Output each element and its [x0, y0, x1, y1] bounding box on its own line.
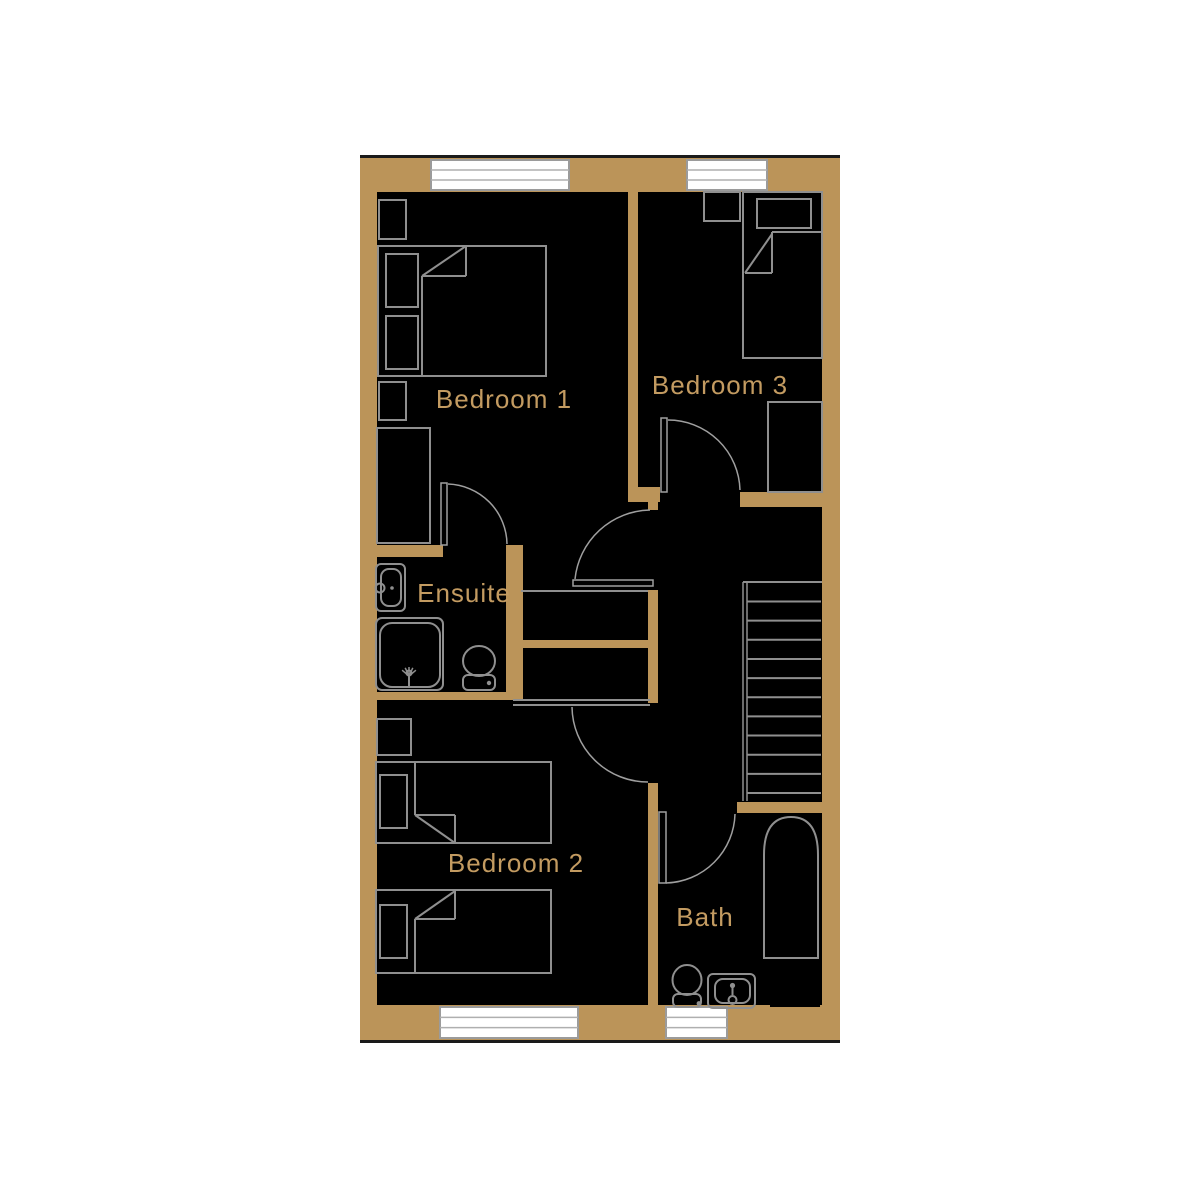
wall-divider-stub	[648, 502, 658, 510]
room-label-ensuite: Ensuite	[417, 578, 511, 608]
room-label-bath: Bath	[676, 902, 734, 932]
floorplan: Bedroom 1Bedroom 3EnsuiteBedroom 2Bath	[0, 0, 1200, 1200]
wall-bed3-bottom	[740, 492, 822, 507]
window-top-bedroom1	[431, 160, 569, 190]
room-label-bedroom3: Bedroom 3	[652, 370, 788, 400]
window-bottom-bath	[666, 1007, 727, 1038]
bath-cistern-button	[697, 1001, 702, 1006]
wall-bed2-bath-divider	[648, 783, 658, 1005]
wall-landing-west	[648, 590, 658, 703]
window-bottom-bedroom2	[440, 1007, 578, 1038]
wall-divider-foot	[628, 487, 660, 502]
window-top-bedroom3	[687, 160, 767, 190]
wall-bed1-bed3-divider	[628, 161, 638, 492]
wall-cupboard-mid	[511, 640, 655, 648]
wall-bath-top	[737, 802, 840, 813]
outer-wall-right	[822, 157, 840, 1040]
bath-sink-faucet-dot	[730, 983, 735, 988]
wall-ensuite-bottom	[360, 692, 506, 700]
wall-ensuite-right	[506, 545, 523, 700]
floorplan-page: Bedroom 1Bedroom 3EnsuiteBedroom 2Bath	[0, 0, 1200, 1200]
room-label-bedroom1: Bedroom 1	[436, 384, 572, 414]
wall-ensuite-top	[360, 545, 443, 557]
room-label-bedroom2: Bedroom 2	[448, 848, 584, 878]
outer-wall-left	[360, 157, 377, 1040]
ensuite-basin-tap-dot	[390, 586, 394, 590]
bath-corner-recess	[770, 977, 820, 1007]
ensuite-cistern-button	[487, 681, 491, 685]
outer-wall-bottom	[360, 1005, 840, 1040]
